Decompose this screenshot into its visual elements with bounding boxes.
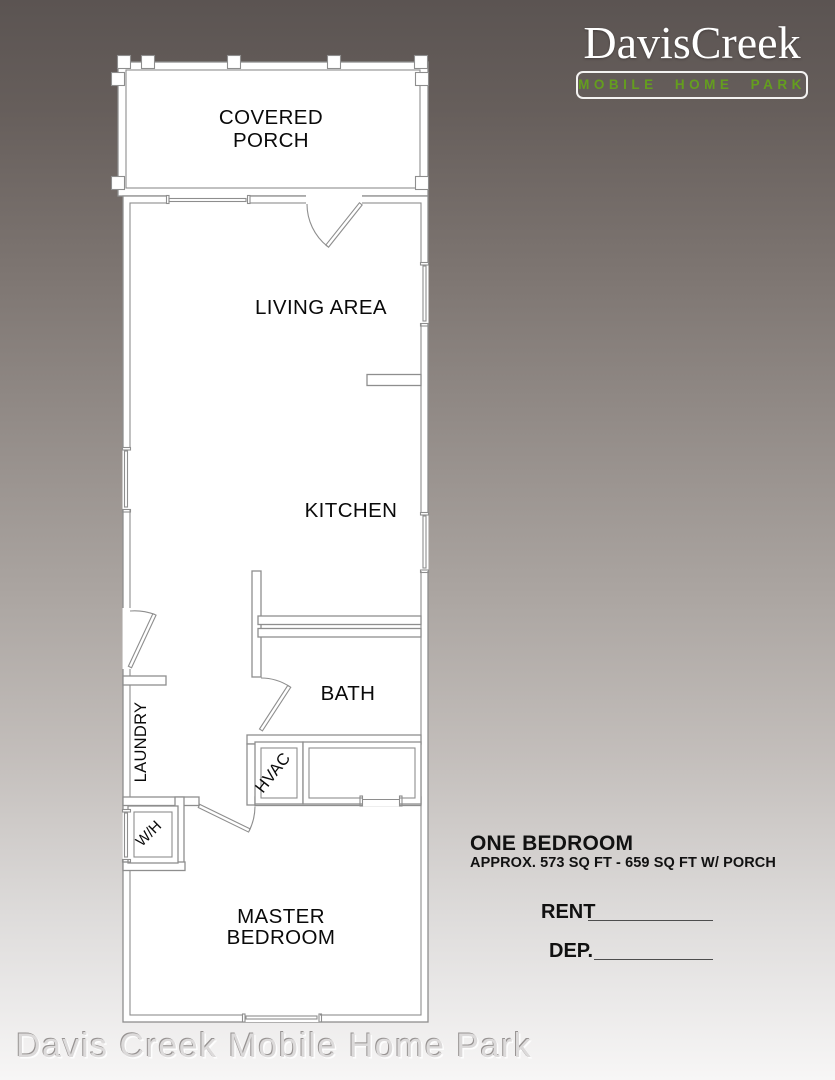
bedroom-closet [303, 742, 421, 806]
unit-area: APPROX. 573 SQ FT - 659 SQ FT W/ PORCH [470, 855, 776, 871]
flyer-page: COVERED PORCH [0, 0, 835, 1080]
floor-plan: COVERED PORCH [0, 0, 835, 1080]
logo-name: DavisCreek [576, 20, 808, 66]
room-label-covered-porch-1: COVERED [219, 106, 323, 129]
logo-tagline: MOBILE HOME PARK [576, 71, 808, 99]
logo: DavisCreek MOBILE HOME PARK [576, 20, 808, 99]
deposit-label: DEP. [549, 940, 593, 963]
covered-porch: COVERED PORCH [112, 56, 429, 197]
rent-blank-line [588, 920, 713, 921]
room-label-kitchen: KITCHEN [305, 499, 398, 522]
room-label-living-area: LIVING AREA [255, 296, 387, 319]
unit-title: ONE BEDROOM [470, 832, 633, 856]
room-label-laundry: LAUNDRY [132, 702, 150, 783]
room-label-master-bedroom-1: MASTER [237, 905, 325, 928]
room-label-bath: BATH [321, 682, 376, 705]
room-label-master-bedroom-2: BEDROOM [227, 926, 336, 949]
house-shell [123, 196, 428, 1022]
room-label-covered-porch-2: PORCH [233, 129, 309, 152]
deposit-blank-line [594, 959, 713, 960]
watermark-text: Davis Creek Mobile Home Park [16, 1027, 532, 1066]
